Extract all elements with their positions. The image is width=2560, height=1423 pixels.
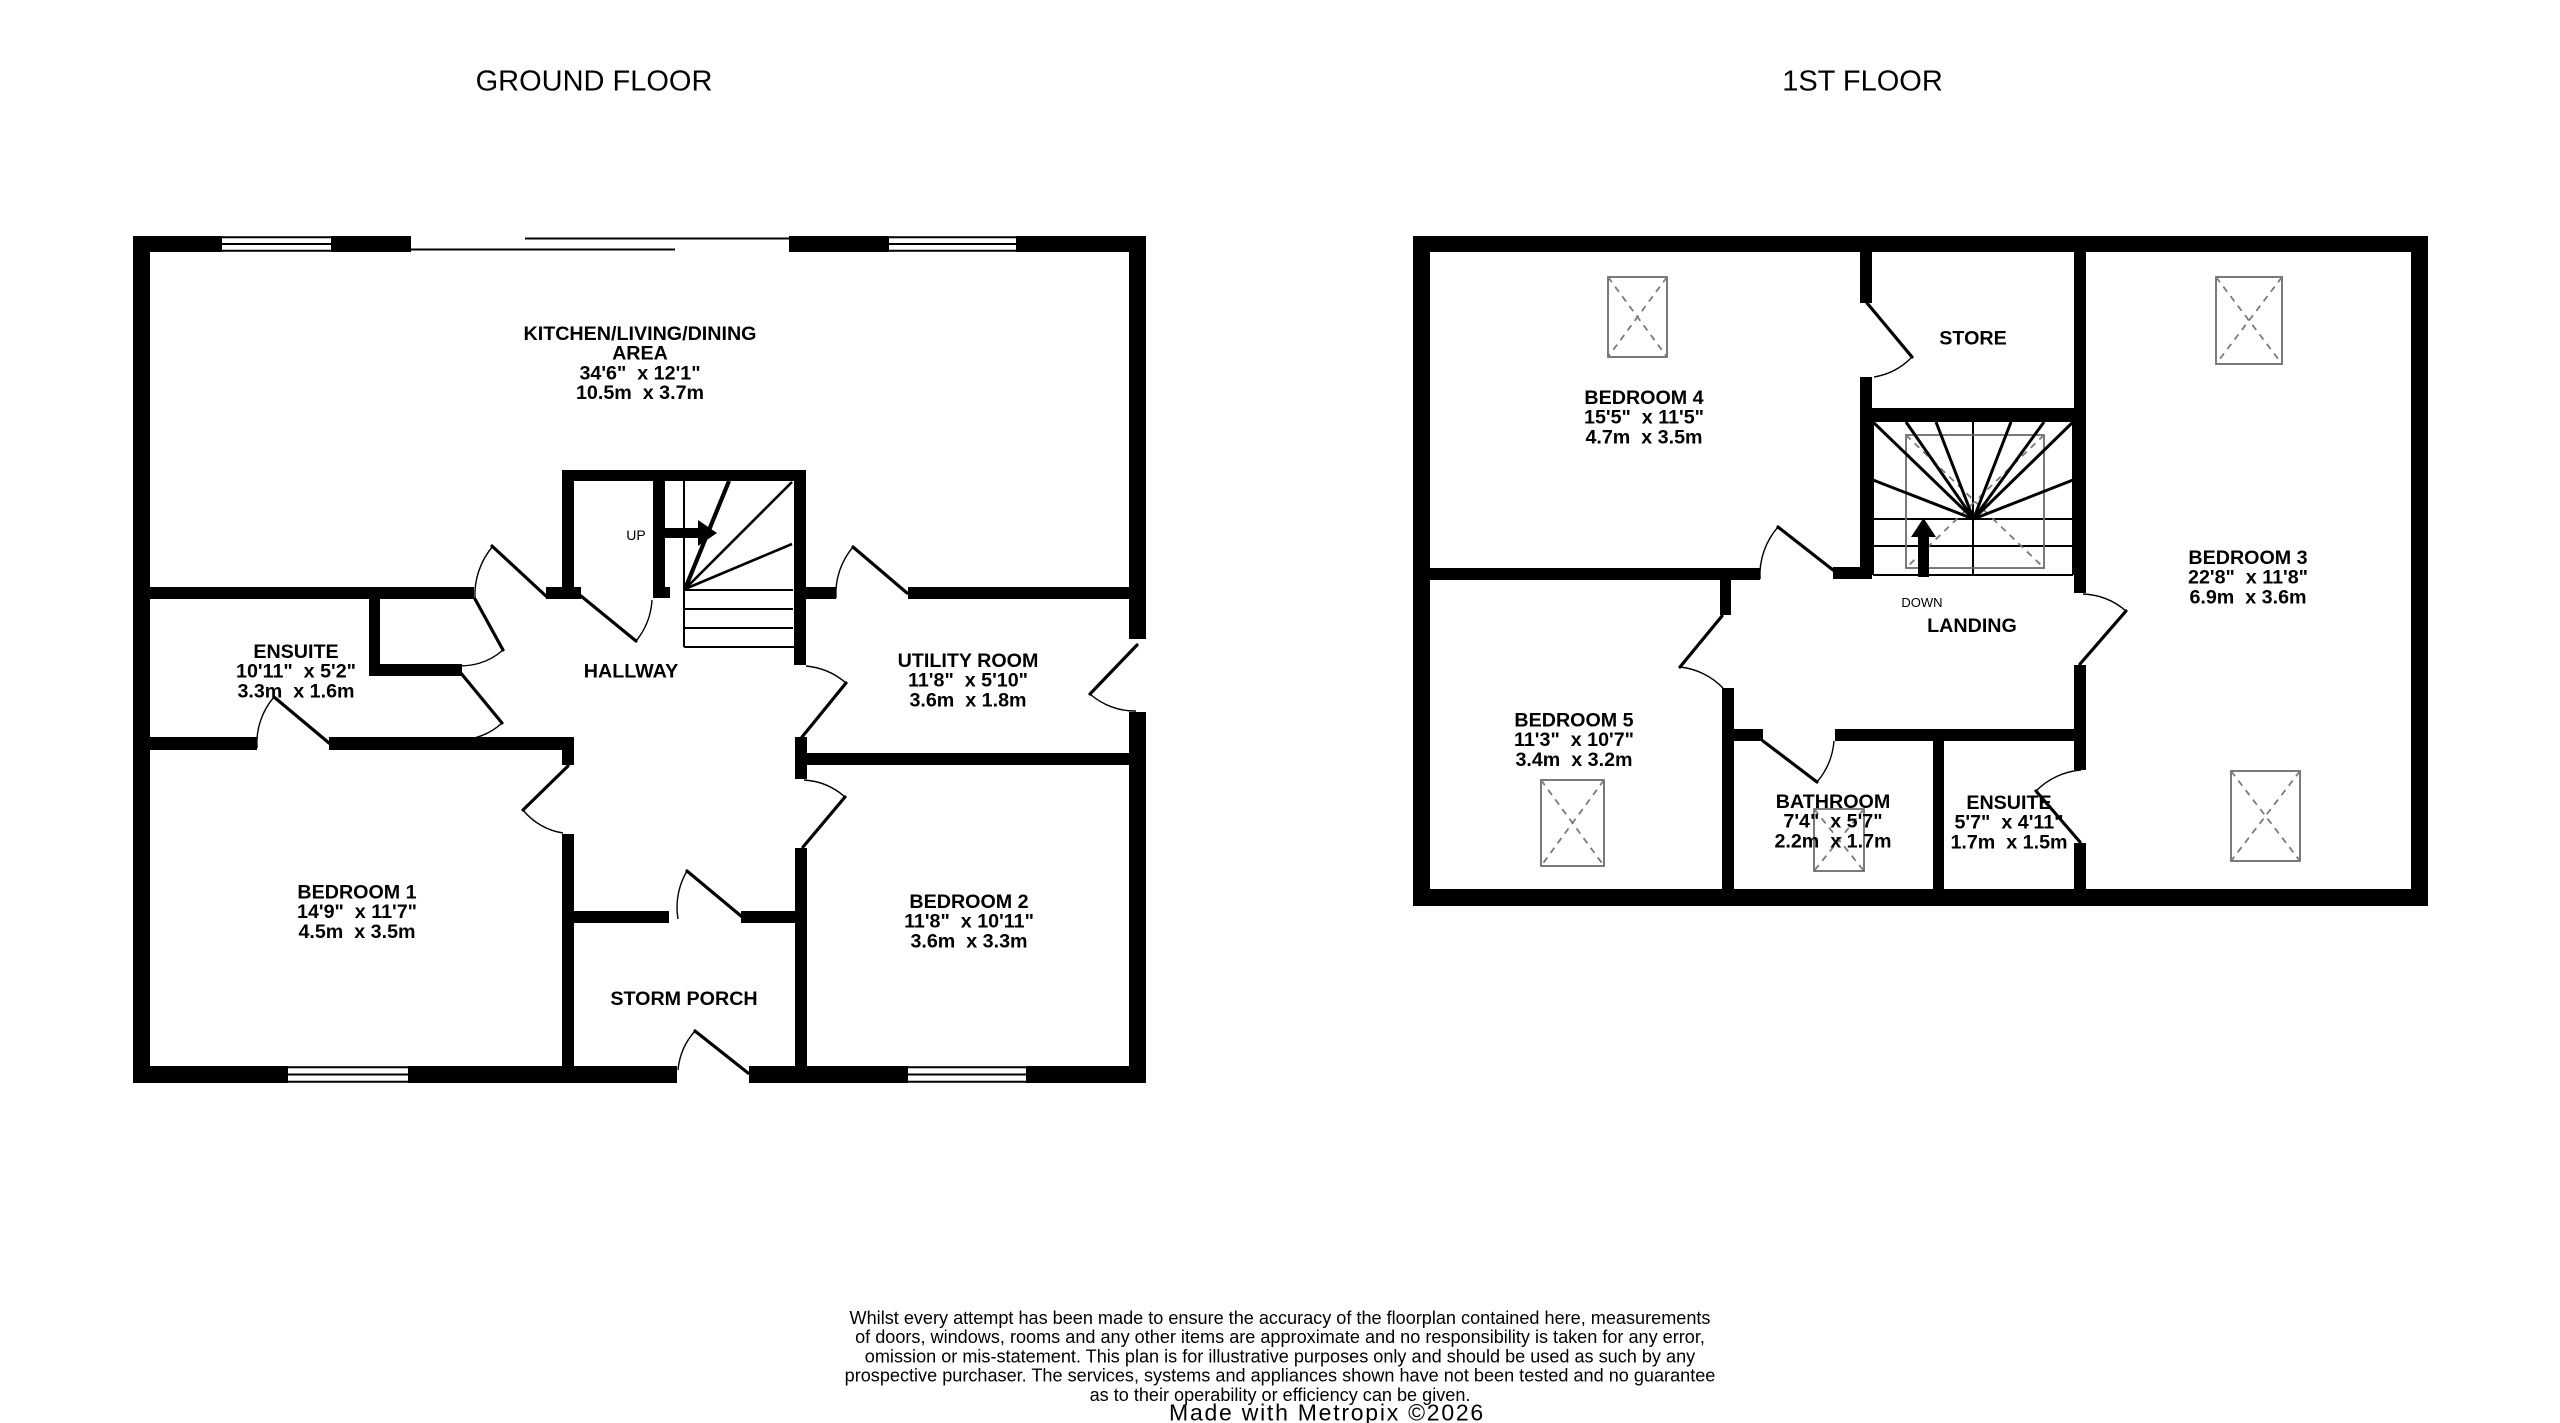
svg-text:2.2m x 1.7m: 2.2m x 1.7m [1774,830,1891,852]
svg-text:BEDROOM 1: BEDROOM 1 [297,882,416,904]
svg-text:BEDROOM 2: BEDROOM 2 [909,891,1028,913]
svg-text:3.4m x 3.2m: 3.4m x 3.2m [1515,749,1632,771]
svg-text:11'3" x 10'7": 11'3" x 10'7" [1514,729,1634,751]
svg-text:1.7m x 1.5m: 1.7m x 1.5m [1950,831,2067,853]
svg-text:UP: UP [626,527,645,543]
svg-text:prospective purchaser. The ser: prospective purchaser. The services, sys… [845,1366,1716,1386]
svg-text:11'8" x 10'11": 11'8" x 10'11" [904,911,1034,933]
svg-text:7'4" x 5'7": 7'4" x 5'7" [1783,811,1882,833]
svg-text:4.7m x 3.5m: 4.7m x 3.5m [1585,426,1702,448]
svg-text:of doors, windows, rooms and a: of doors, windows, rooms and any other i… [855,1327,1705,1347]
svg-text:14'9" x 11'7": 14'9" x 11'7" [297,901,417,923]
svg-text:BATHROOM: BATHROOM [1776,791,1890,813]
svg-text:11'8" x 5'10": 11'8" x 5'10" [908,670,1028,692]
svg-text:10.5m x 3.7m: 10.5m x 3.7m [576,382,704,404]
svg-text:34'6" x 12'1": 34'6" x 12'1" [579,362,700,384]
svg-text:BEDROOM 5: BEDROOM 5 [1514,710,1633,732]
svg-text:GROUND FLOOR: GROUND FLOOR [476,66,713,98]
svg-text:STORM PORCH: STORM PORCH [610,988,757,1010]
svg-text:3.3m x 1.6m: 3.3m x 1.6m [237,680,354,702]
svg-text:KITCHEN/LIVING/DINING: KITCHEN/LIVING/DINING [524,323,757,345]
svg-text:10'11" x 5'2": 10'11" x 5'2" [236,661,356,683]
svg-text:UTILITY ROOM: UTILITY ROOM [898,650,1039,672]
svg-text:DOWN: DOWN [1901,595,1942,610]
svg-text:omission or mis-statement. Thi: omission or mis-statement. This plan is … [865,1346,1696,1366]
svg-text:3.6m x 1.8m: 3.6m x 1.8m [909,689,1026,711]
svg-text:5'7" x 4'11": 5'7" x 4'11" [1954,812,2063,834]
svg-text:BEDROOM 4: BEDROOM 4 [1584,387,1703,409]
svg-text:3.6m x 3.3m: 3.6m x 3.3m [910,930,1027,952]
svg-text:6.9m x 3.6m: 6.9m x 3.6m [2189,586,2306,608]
svg-text:ENSUITE: ENSUITE [253,641,338,663]
svg-text:BEDROOM 3: BEDROOM 3 [2188,547,2307,569]
svg-text:ENSUITE: ENSUITE [1966,792,2051,814]
svg-text:15'5" x 11'5": 15'5" x 11'5" [1584,407,1704,429]
svg-text:LANDING: LANDING [1927,615,2017,637]
svg-text:1ST FLOOR: 1ST FLOOR [1782,66,1943,98]
svg-text:Made with Metropix ©2026: Made with Metropix ©2026 [1169,1400,1485,1423]
svg-text:STORE: STORE [1939,328,2006,350]
svg-text:4.5m x 3.5m: 4.5m x 3.5m [298,921,415,943]
svg-text:AREA: AREA [612,343,668,365]
svg-text:HALLWAY: HALLWAY [584,661,678,683]
svg-text:Whilst every attempt has been: Whilst every attempt has been made to en… [850,1308,1711,1328]
svg-text:22'8" x 11'8": 22'8" x 11'8" [2188,567,2308,589]
